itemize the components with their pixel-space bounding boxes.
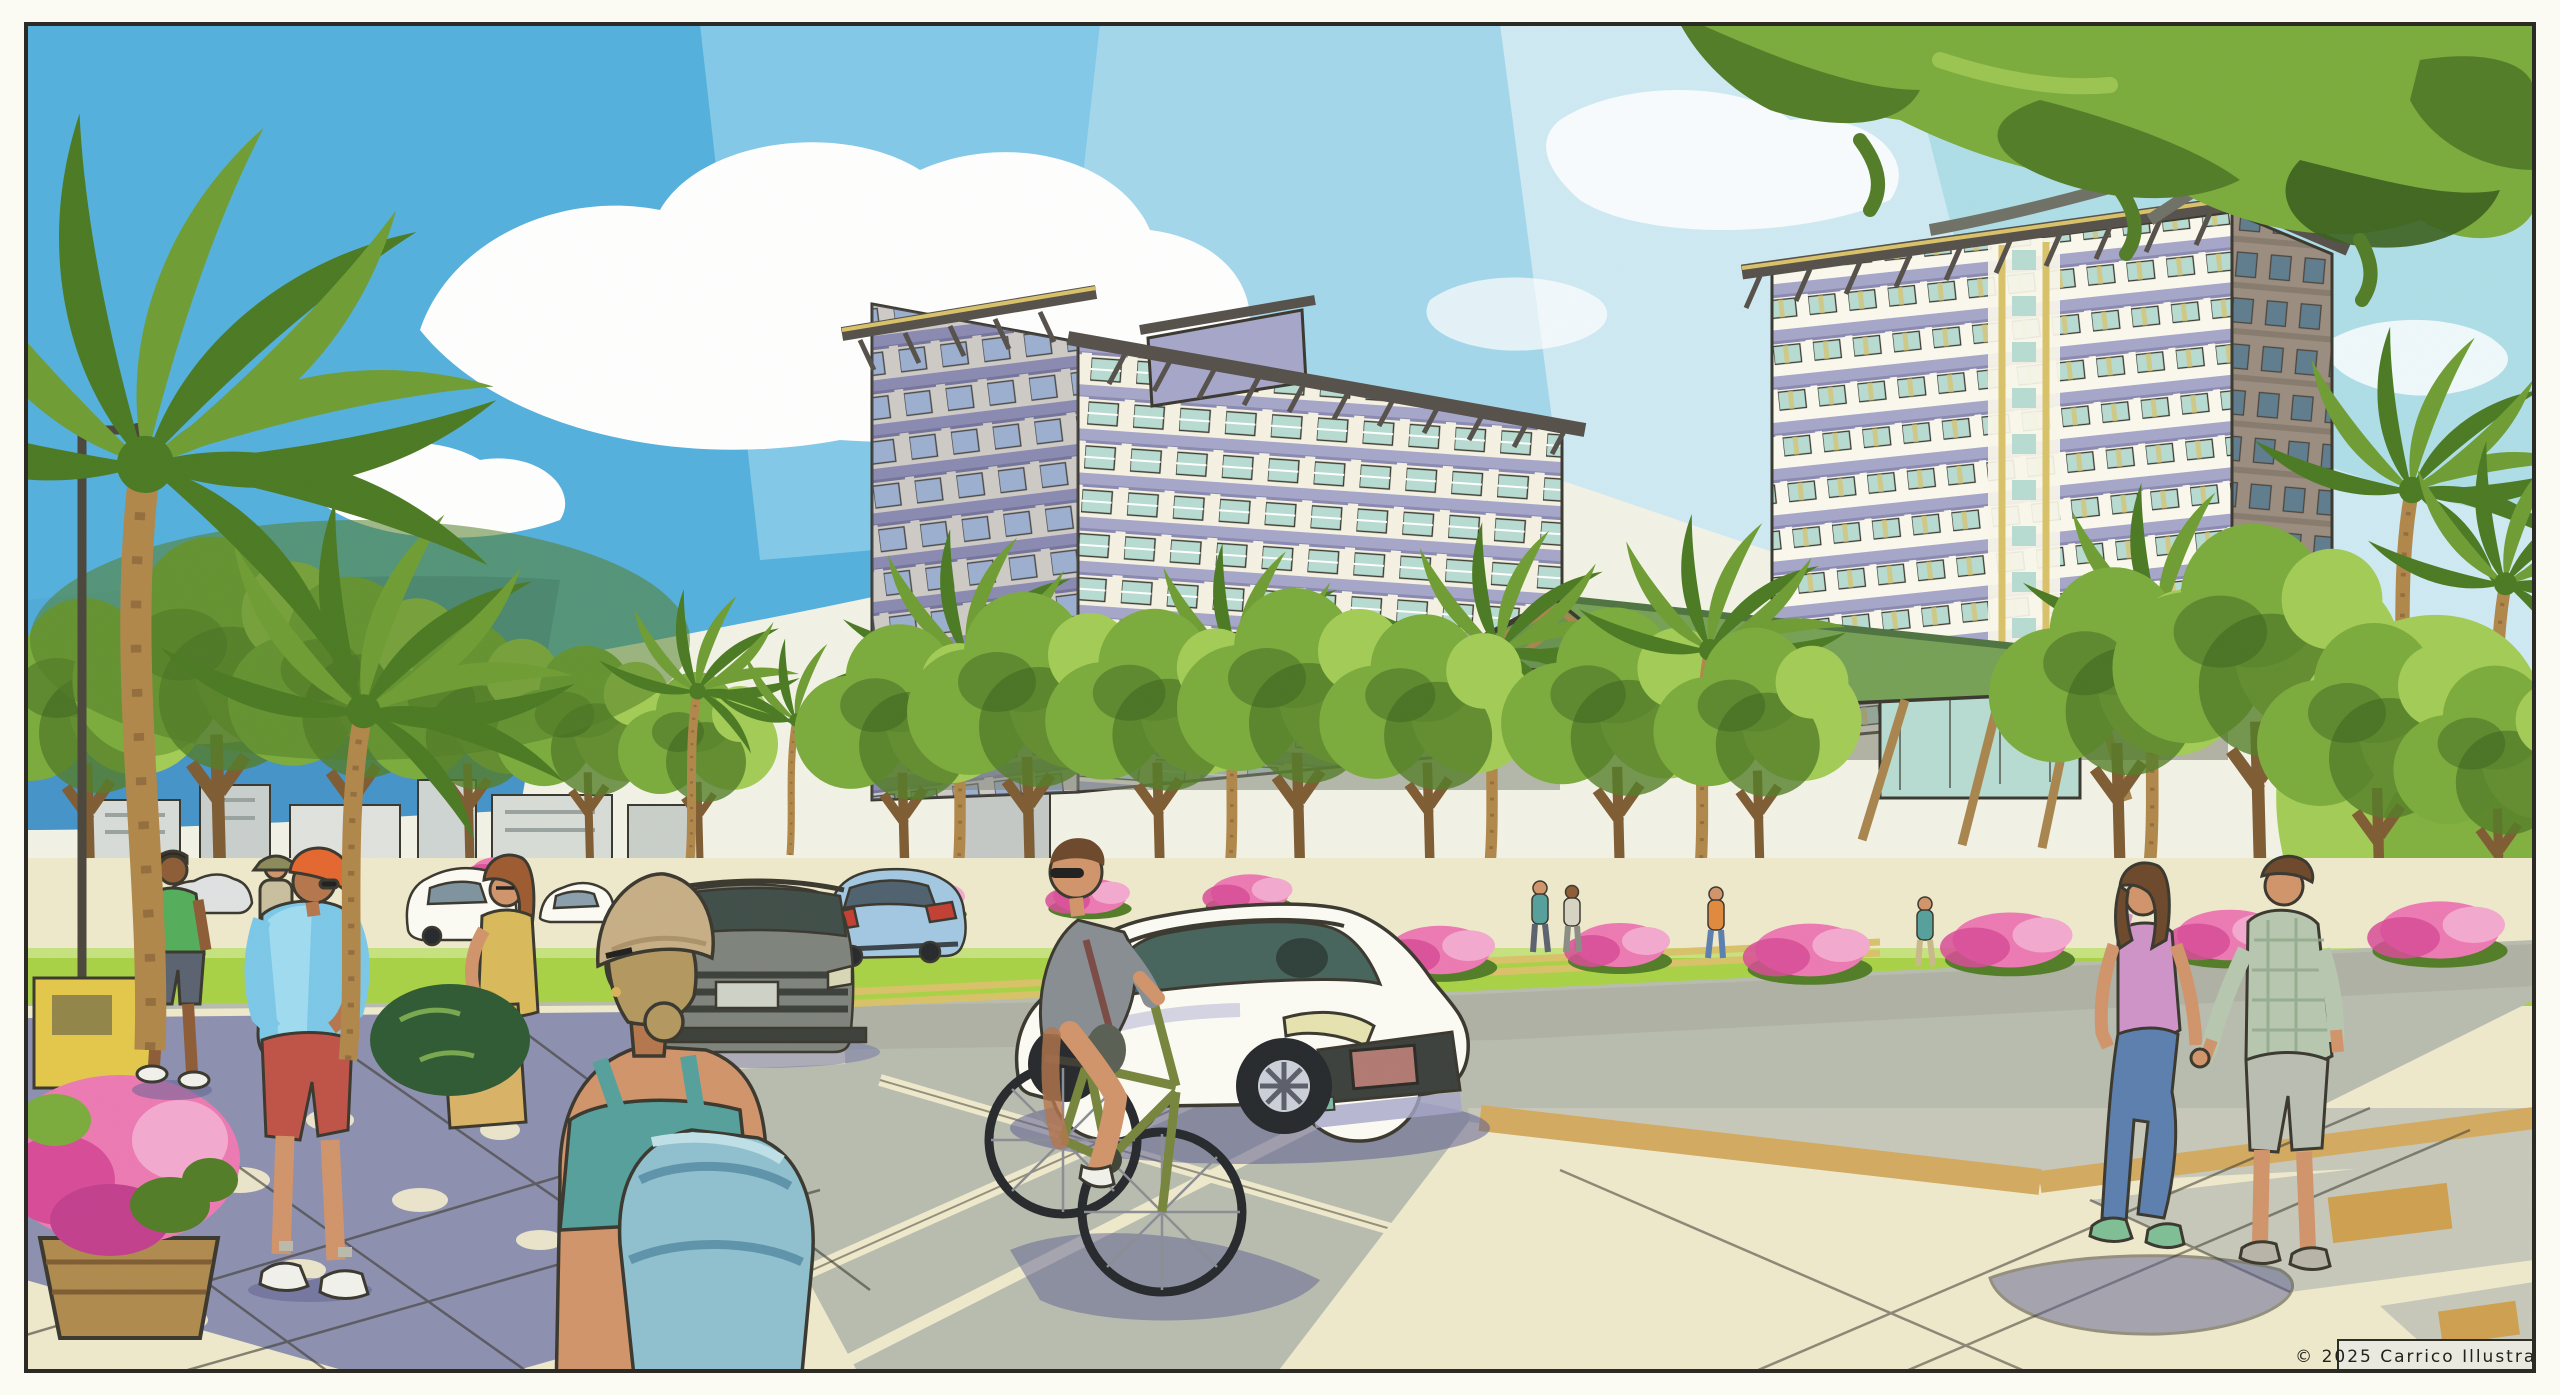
caption-text: © 2025 Carrico Illustration [2295,1347,2560,1367]
paper-grain [26,24,2534,1371]
illustration-canvas: © 2025 Carrico Illustration [0,0,2560,1395]
watercolor-rendering: © 2025 Carrico Illustration [0,0,2560,1395]
artwork: © 2025 Carrico Illustration [0,24,2560,1395]
